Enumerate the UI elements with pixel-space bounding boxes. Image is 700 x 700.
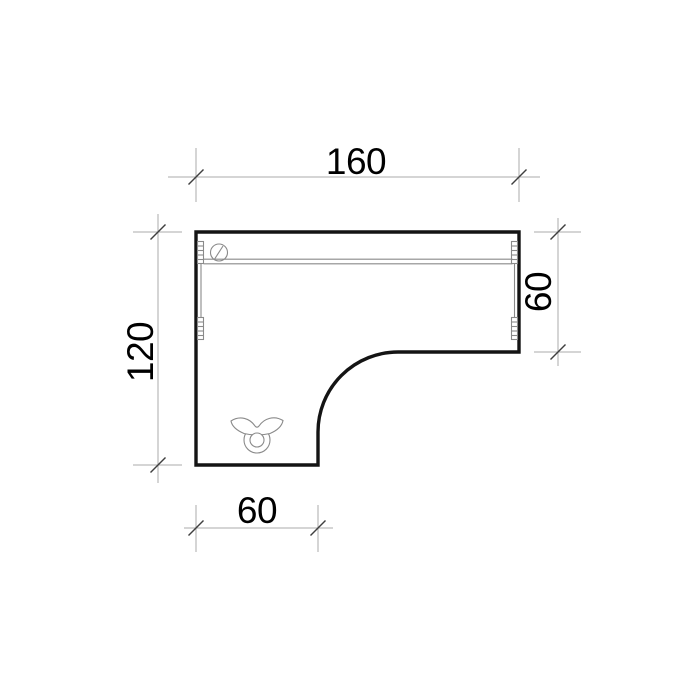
dimension-label-left: 120 [120,322,161,382]
technical-drawing: 160 60 120 60 [0,0,700,700]
dimension-label-right: 60 [518,272,559,312]
leg-column-inner [250,433,264,447]
drawing-canvas: 160 60 120 60 [0,0,700,700]
dimension-label-bottom: 60 [237,490,277,531]
dimension-label-top: 160 [326,141,386,182]
